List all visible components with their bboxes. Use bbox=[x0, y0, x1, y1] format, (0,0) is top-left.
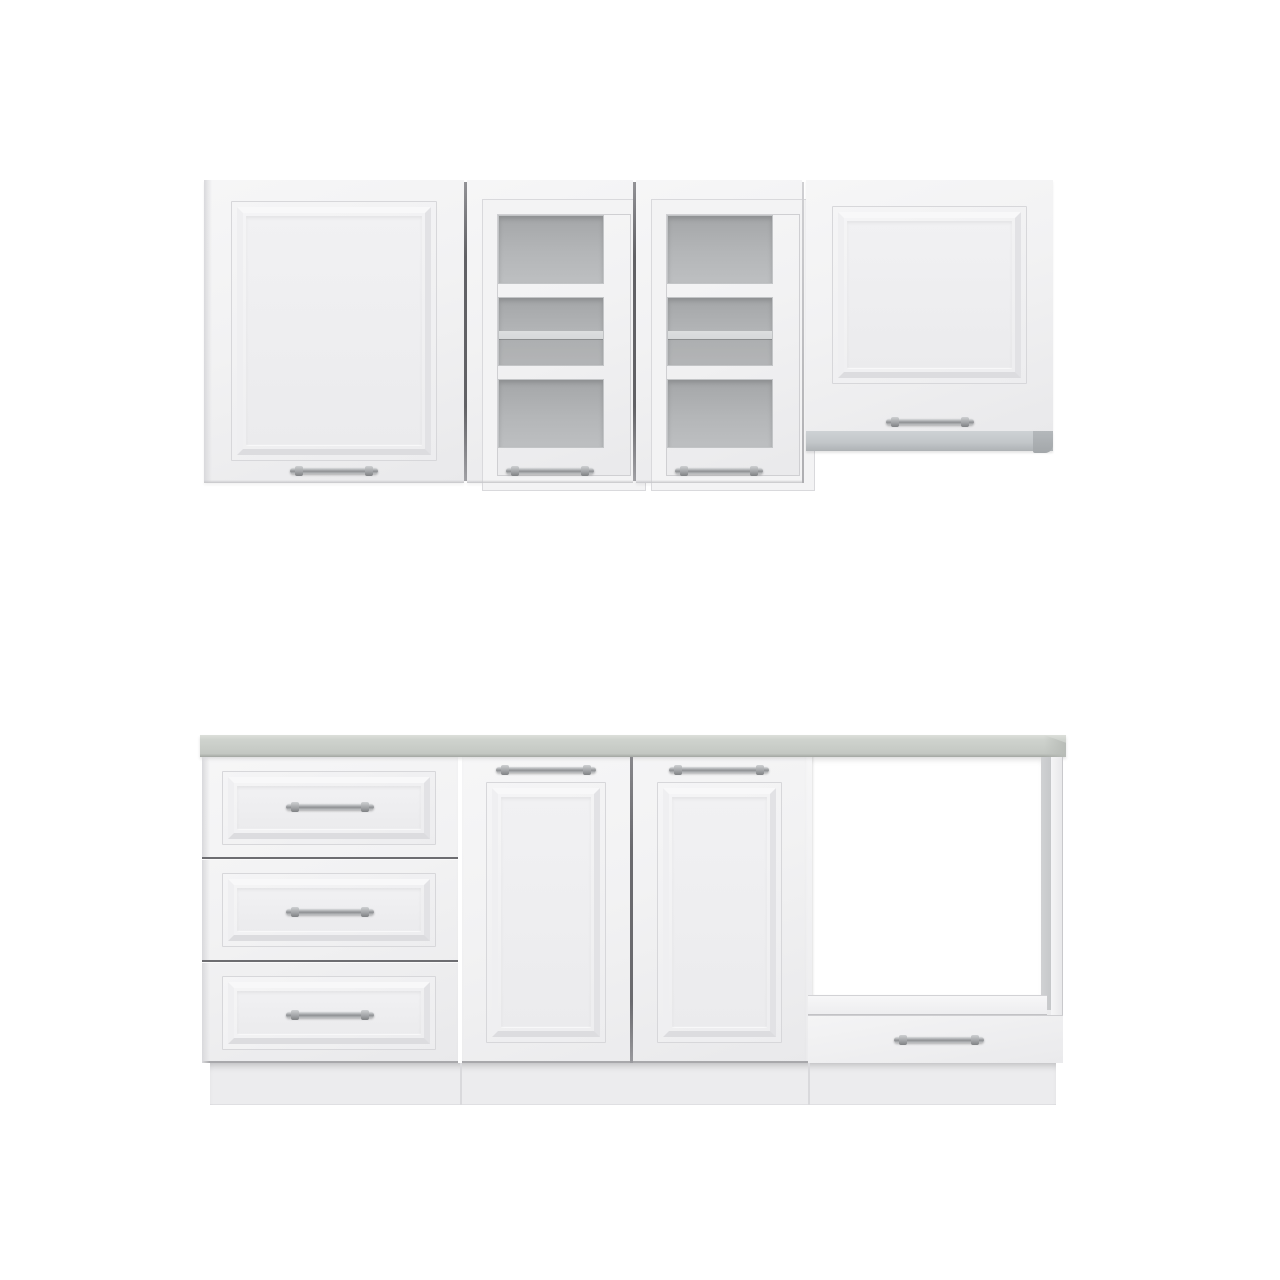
oven-housing-unit bbox=[806, 757, 1063, 1063]
cabinet-handle bbox=[669, 767, 769, 773]
glass-pane bbox=[498, 297, 604, 366]
drawer-front bbox=[202, 757, 458, 857]
door-frame-panel bbox=[486, 782, 606, 1043]
wall-cabinet-glass-door-right bbox=[636, 180, 802, 483]
plinth-seam bbox=[808, 1063, 810, 1105]
worktop-end-cap bbox=[1044, 735, 1066, 757]
drawer-handle bbox=[286, 909, 374, 915]
door-frame-panel bbox=[231, 201, 437, 461]
cabinet-edge-line bbox=[802, 182, 804, 483]
trim-end-cap bbox=[1033, 431, 1053, 453]
drawer-front bbox=[202, 857, 458, 962]
glass-pane bbox=[667, 215, 773, 284]
cabinet-handle bbox=[496, 767, 596, 773]
base-door-left bbox=[462, 757, 630, 1063]
drawer-front bbox=[202, 960, 458, 1065]
interior-shelf bbox=[668, 331, 772, 339]
cabinet-handle bbox=[290, 468, 378, 474]
niche-bottom-shelf bbox=[808, 995, 1047, 1015]
interior-shelf bbox=[499, 331, 603, 339]
niche-side-face bbox=[1041, 757, 1051, 1010]
base-door-unit bbox=[462, 757, 806, 1063]
cabinet-handle bbox=[886, 419, 974, 425]
base-drawer-unit bbox=[202, 757, 458, 1063]
aluminum-trim-strip bbox=[806, 431, 1053, 451]
wall-cabinet-solid-door bbox=[204, 180, 464, 483]
base-door-right bbox=[633, 757, 806, 1063]
kitchen-set-product-image bbox=[0, 0, 1280, 1280]
cabinet-handle bbox=[675, 468, 763, 474]
wall-cabinet-lift-up-door bbox=[806, 180, 1053, 431]
plinth bbox=[210, 1063, 1056, 1105]
drawer-handle bbox=[894, 1037, 984, 1043]
glass-pane bbox=[498, 215, 604, 284]
glass-pane bbox=[667, 379, 773, 448]
worktop bbox=[200, 735, 1066, 757]
door-frame-panel bbox=[657, 782, 782, 1043]
door-frame-panel bbox=[832, 206, 1027, 384]
drawer-handle bbox=[286, 1012, 374, 1018]
glass-pane bbox=[498, 379, 604, 448]
glass-pane bbox=[667, 297, 773, 366]
oven-niche-opening bbox=[812, 757, 1041, 995]
wall-cabinet-glass-door-left bbox=[467, 180, 633, 483]
plinth-seam bbox=[460, 1063, 462, 1105]
shelf-shadow bbox=[499, 339, 603, 365]
cabinet-handle bbox=[506, 468, 594, 474]
drawer-handle bbox=[286, 804, 374, 810]
oven-housing-drawer bbox=[808, 1015, 1063, 1063]
shelf-shadow bbox=[668, 339, 772, 365]
